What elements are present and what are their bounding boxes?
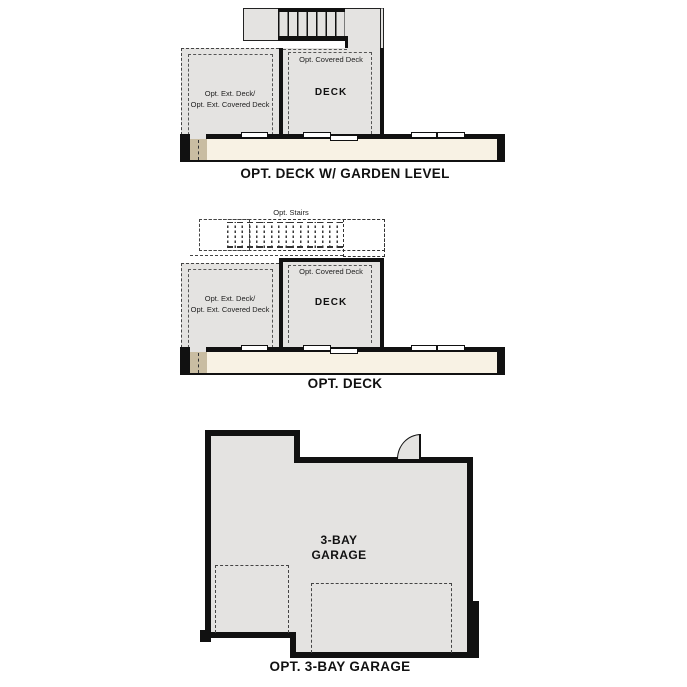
stair-corridor xyxy=(345,8,384,49)
window xyxy=(437,132,465,138)
ext-deck-label-line2: Opt. Ext. Covered Deck xyxy=(181,305,279,316)
house-band-right-cap xyxy=(497,134,505,162)
covered-deck-label: Opt. Covered Deck xyxy=(283,55,379,66)
deck-room-top-dash xyxy=(283,49,347,50)
opt-stairs-treads xyxy=(227,222,343,248)
window xyxy=(411,345,437,351)
tan-strip-dash xyxy=(198,140,199,160)
ext-deck-label-line2: Opt. Ext. Covered Deck xyxy=(181,100,279,111)
opt-stairs-base-dash xyxy=(190,255,343,256)
house-band-tan-strip xyxy=(190,352,207,375)
window xyxy=(437,345,465,351)
section-caption-deck-garden: OPT. DECK W/ GARDEN LEVEL xyxy=(180,166,510,181)
section-caption-garage: OPT. 3-BAY GARAGE xyxy=(190,659,490,674)
window xyxy=(411,132,437,138)
window xyxy=(303,132,331,138)
garage-wall-top-right xyxy=(294,457,473,463)
opt-stairs-label: Opt. Stairs xyxy=(241,208,341,219)
house-band-bottom-line xyxy=(180,373,505,375)
garage-wall-top-left xyxy=(205,430,300,436)
house-band-bottom-line xyxy=(180,160,505,162)
house-band-left-cap xyxy=(180,347,190,375)
garage-bay-outline-left xyxy=(215,565,289,633)
ext-deck-label: Opt. Ext. Deck/ Opt. Ext. Covered Deck xyxy=(181,294,279,315)
door-swing-icon xyxy=(397,434,421,459)
garage-wall-right-step xyxy=(473,601,479,658)
window xyxy=(241,132,268,138)
floor-plan-canvas: Opt. Covered Deck DECK Opt. Ext. Deck/ O… xyxy=(0,0,687,687)
garage-room-label-line1: 3-BAY xyxy=(289,533,389,548)
garage-room-label: 3-BAY GARAGE xyxy=(289,533,389,563)
window xyxy=(330,348,358,354)
tan-strip-dash xyxy=(198,353,199,373)
garage-bay-outline-right xyxy=(311,583,452,653)
stair-treads xyxy=(278,8,345,41)
garage-wall-left xyxy=(205,430,211,640)
window xyxy=(303,345,331,351)
deck-room-label: DECK xyxy=(283,87,379,98)
opt-stairs-right-box xyxy=(343,219,385,257)
window xyxy=(330,135,358,141)
house-band-tan-strip xyxy=(190,139,207,162)
section-caption-deck: OPT. DECK xyxy=(180,376,510,391)
ext-deck-label-line1: Opt. Ext. Deck/ xyxy=(181,89,279,100)
ext-deck-label: Opt. Ext. Deck/ Opt. Ext. Covered Deck xyxy=(181,89,279,110)
ext-deck-label-line1: Opt. Ext. Deck/ xyxy=(181,294,279,305)
covered-deck-label: Opt. Covered Deck xyxy=(283,267,379,278)
garage-room-label-line2: GARAGE xyxy=(289,548,389,563)
house-band xyxy=(190,139,497,160)
window xyxy=(241,345,268,351)
stair-landing xyxy=(243,8,279,41)
house-band-right-cap xyxy=(497,347,505,375)
house-band-left-cap xyxy=(180,134,190,162)
deck-room-label: DECK xyxy=(283,297,379,308)
house-band xyxy=(190,352,497,373)
